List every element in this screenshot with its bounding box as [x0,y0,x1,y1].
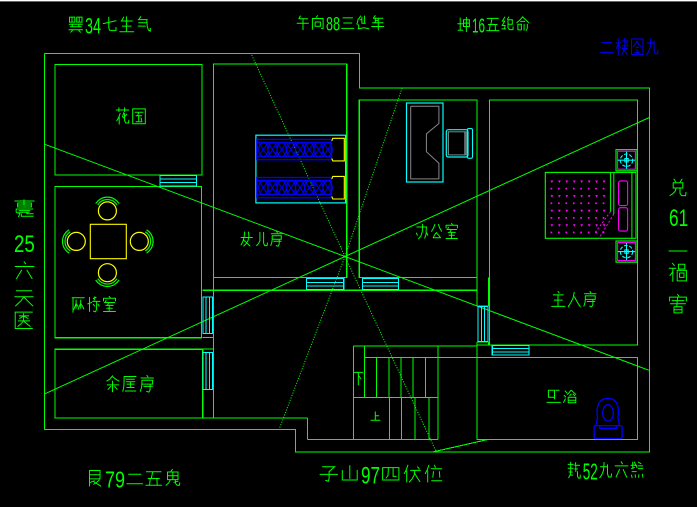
svg-text:16: 16 [472,14,485,37]
svg-text:79: 79 [105,467,125,493]
svg-text:88: 88 [326,14,340,35]
svg-text:34: 34 [85,13,101,38]
svg-text:97: 97 [361,463,380,490]
svg-text:61: 61 [669,205,688,231]
svg-text:52: 52 [583,460,598,486]
svg-text:25: 25 [14,231,35,258]
